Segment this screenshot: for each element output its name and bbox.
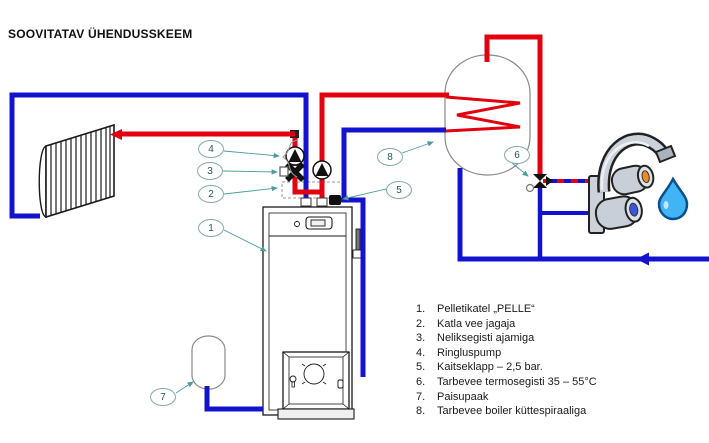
callout-6-label: 6 bbox=[514, 150, 520, 161]
callout-7-label: 7 bbox=[160, 392, 166, 403]
schematic-svg bbox=[0, 0, 709, 443]
mixer-actuator bbox=[280, 167, 288, 176]
callout-8-label: 8 bbox=[387, 152, 393, 163]
callout-3-label: 3 bbox=[207, 166, 213, 177]
legend: 1. Pelletikatel „PELLE“ 2. Katla vee jag… bbox=[416, 302, 597, 419]
legend-item-text: Pelletikatel „PELLE“ bbox=[437, 302, 535, 317]
callout-6: 6 bbox=[504, 146, 530, 164]
expansion-tank bbox=[192, 336, 225, 389]
door-latch bbox=[338, 380, 343, 388]
legend-item-text: Ringluspump bbox=[437, 346, 501, 361]
supply-flange bbox=[317, 198, 327, 206]
callout-8: 8 bbox=[377, 148, 403, 166]
burner-port bbox=[304, 364, 324, 384]
thermo-knob bbox=[527, 185, 534, 192]
boiler-base bbox=[278, 409, 354, 419]
cold-return-pipes bbox=[12, 95, 709, 409]
legend-item-number: 4. bbox=[416, 346, 437, 361]
legend-item-number: 5. bbox=[416, 360, 437, 375]
legend-item-6: 6. Tarbevee termosegisti 35 – 55°C bbox=[416, 375, 597, 390]
legend-item-8: 8. Tarbevee boiler küttespiraaliga bbox=[416, 404, 597, 419]
legend-item-number: 3. bbox=[416, 331, 437, 346]
callout-4: 4 bbox=[198, 140, 224, 158]
legend-item-7: 7. Paisupaak bbox=[416, 390, 597, 405]
callout-3: 3 bbox=[197, 162, 223, 180]
callout-2: 2 bbox=[198, 185, 224, 203]
callout-2-label: 2 bbox=[208, 189, 214, 200]
callout-5-label: 5 bbox=[396, 185, 402, 196]
legend-item-text: Katla vee jagaja bbox=[437, 317, 515, 332]
cold-flow-arrow bbox=[636, 253, 649, 266]
boiler-control-panel bbox=[306, 217, 332, 229]
circulation-pump-dhw bbox=[313, 161, 331, 179]
boiler-door bbox=[283, 352, 349, 409]
boiler-indicator bbox=[295, 222, 300, 227]
legend-item-text: Tarbevee boiler küttespiraaliga bbox=[437, 404, 586, 419]
expansion-tank-pipe bbox=[207, 386, 263, 409]
legend-item-4: 4. Ringluspump bbox=[416, 346, 597, 361]
diagram-canvas: SOOVITATAV ÜHENDUSSKEEM bbox=[0, 0, 709, 443]
callout-5: 5 bbox=[386, 181, 412, 199]
pellet-boiler bbox=[263, 207, 362, 419]
faucet bbox=[589, 139, 675, 233]
legend-item-number: 6. bbox=[416, 375, 437, 390]
legend-item-text: Paisupaak bbox=[437, 390, 488, 405]
legend-item-5: 5. Kaitseklapp – 2,5 bar. bbox=[416, 360, 597, 375]
legend-item-3: 3. Neliksegisti ajamiga bbox=[416, 331, 597, 346]
callout-1: 1 bbox=[198, 219, 224, 237]
legend-item-number: 1. bbox=[416, 302, 437, 317]
door-keyhole bbox=[290, 376, 296, 382]
legend-item-number: 8. bbox=[416, 404, 437, 419]
legend-item-2: 2. Katla vee jagaja bbox=[416, 317, 597, 332]
callout-1-label: 1 bbox=[208, 223, 214, 234]
legend-item-text: Neliksegisti ajamiga bbox=[437, 331, 534, 346]
water-drop bbox=[659, 179, 687, 219]
legend-item-number: 2. bbox=[416, 317, 437, 332]
legend-item-1: 1. Pelletikatel „PELLE“ bbox=[416, 302, 597, 317]
legend-item-text: Kaitseklapp – 2,5 bar. bbox=[437, 360, 543, 375]
safety-valve bbox=[329, 195, 341, 205]
legend-item-number: 7. bbox=[416, 390, 437, 405]
callout-4-label: 4 bbox=[208, 144, 214, 155]
legend-item-text: Tarbevee termosegisti 35 – 55°C bbox=[437, 375, 597, 390]
radiator bbox=[39, 125, 114, 217]
return-flange bbox=[301, 198, 311, 206]
hot-knob bbox=[610, 162, 656, 196]
callout-7: 7 bbox=[150, 388, 176, 406]
